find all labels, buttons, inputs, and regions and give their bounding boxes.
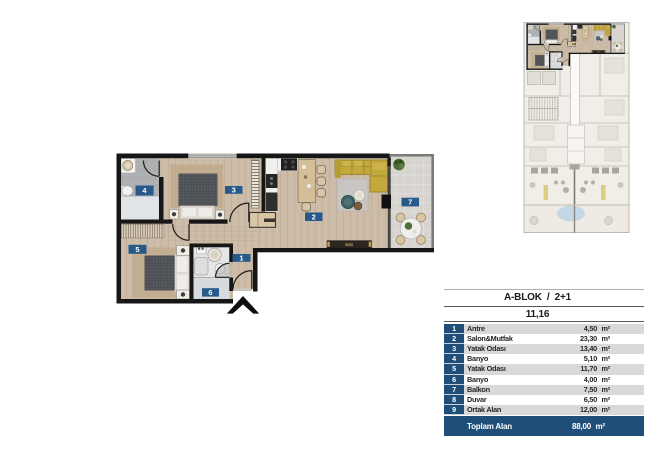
svg-text:1: 1: [239, 253, 243, 262]
svg-text:2: 2: [312, 212, 316, 221]
svg-text:6: 6: [208, 288, 212, 297]
svg-text:3: 3: [232, 185, 236, 194]
svg-text:5: 5: [135, 245, 139, 254]
svg-text:7: 7: [408, 198, 412, 207]
